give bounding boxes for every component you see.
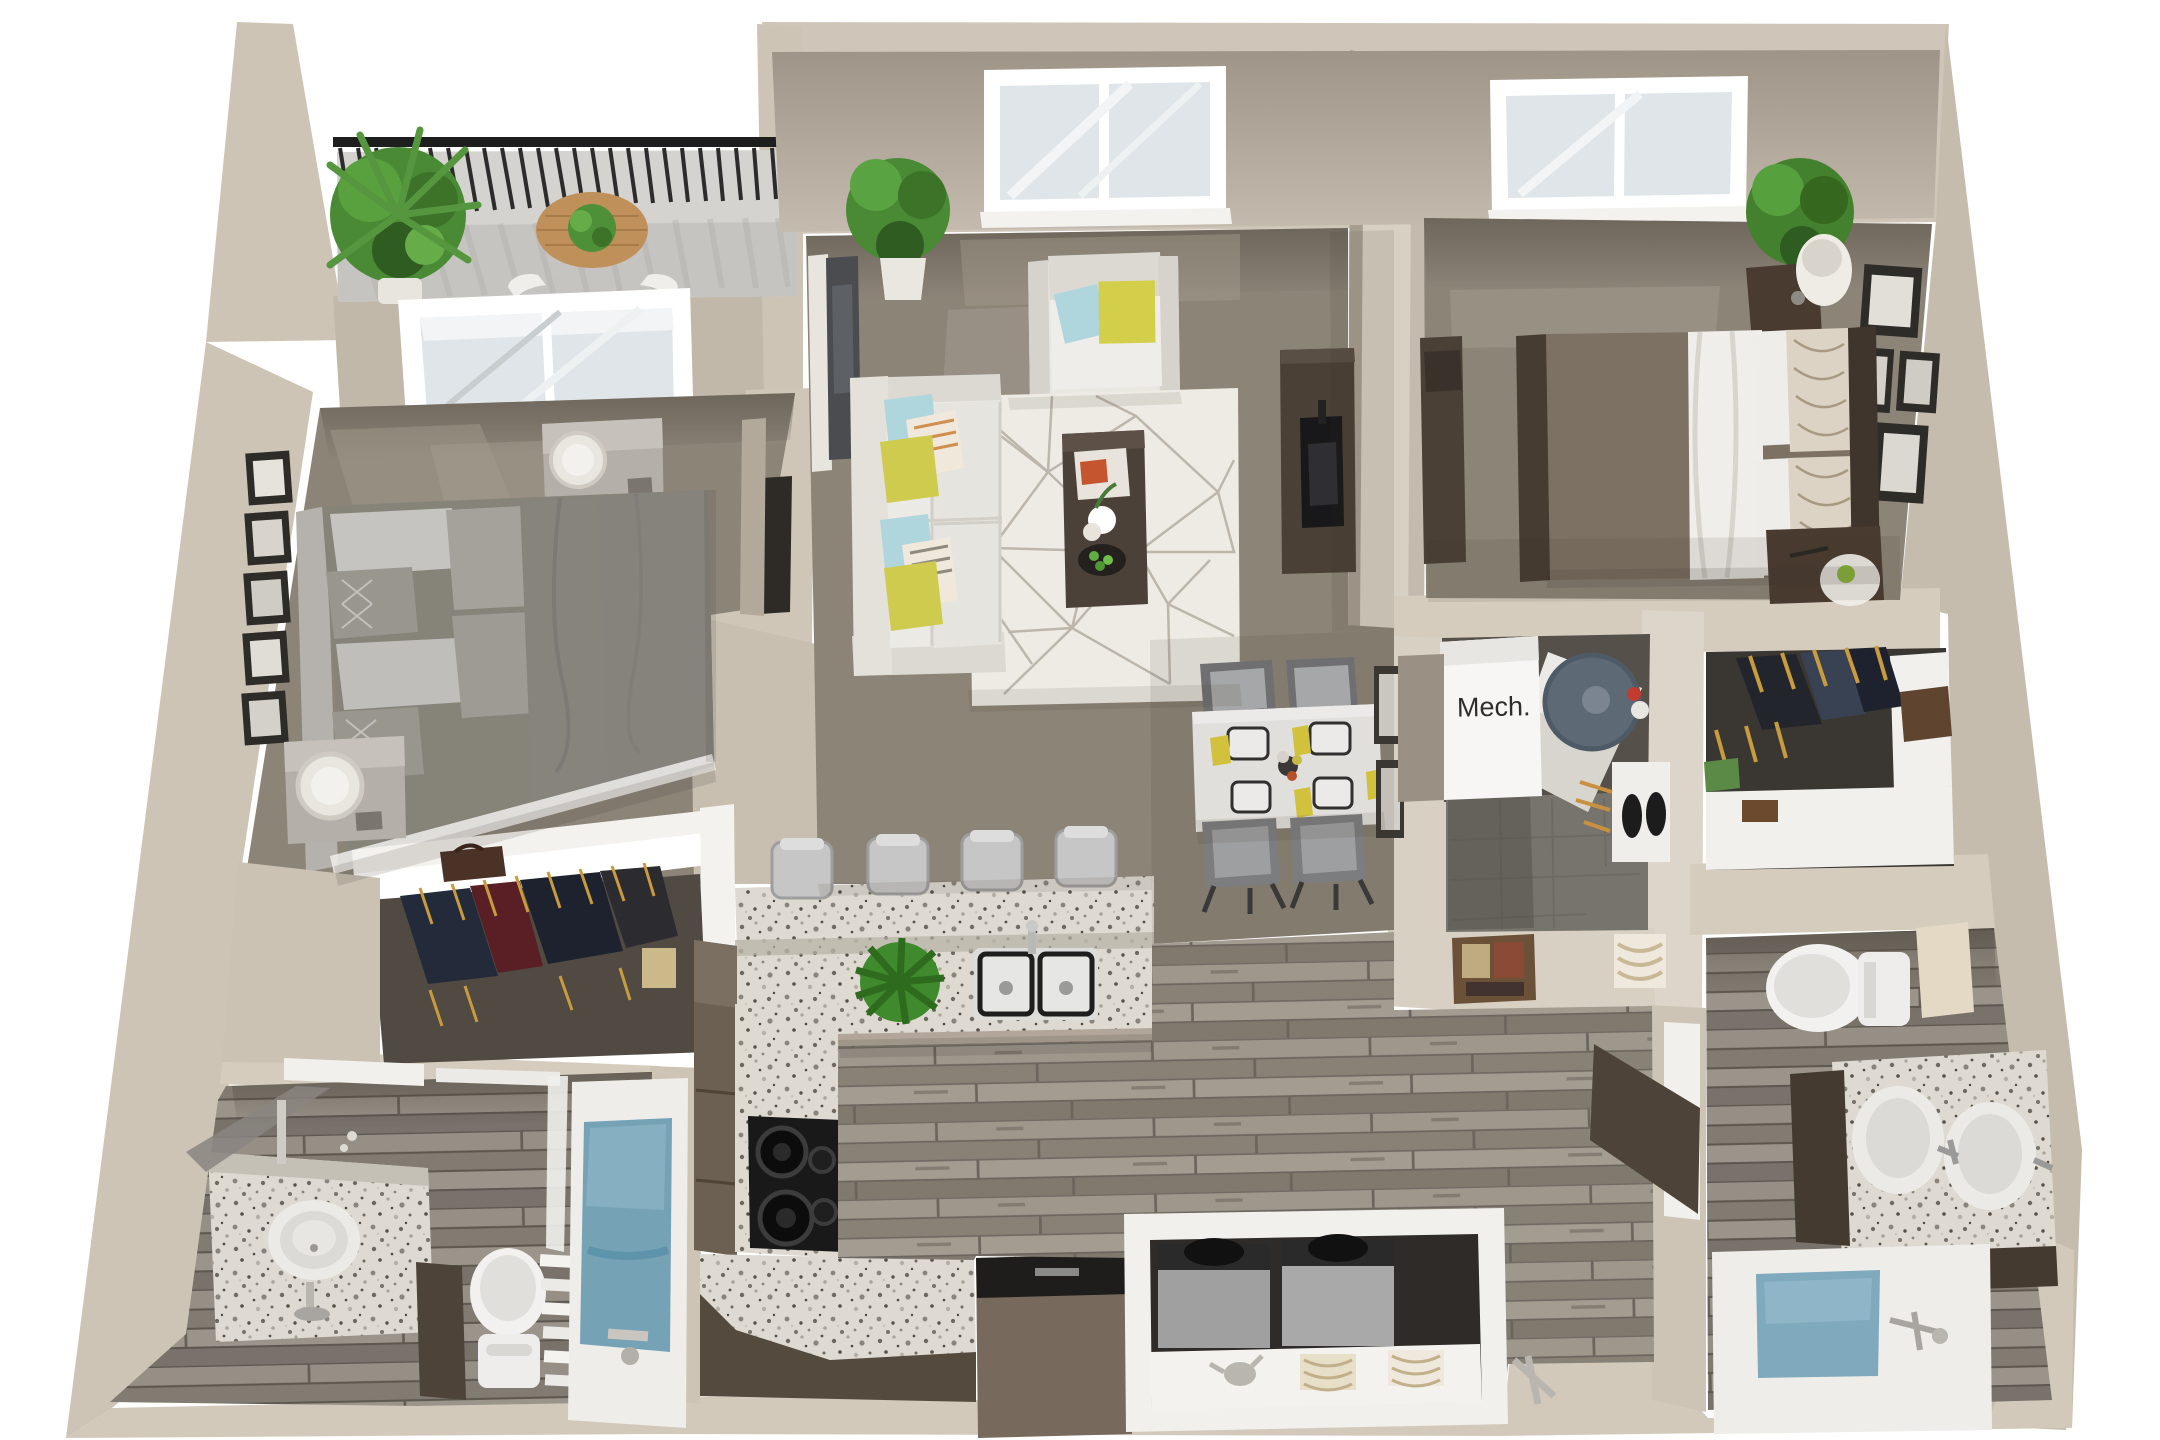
svg-text:Mech.: Mech. xyxy=(1457,691,1531,722)
